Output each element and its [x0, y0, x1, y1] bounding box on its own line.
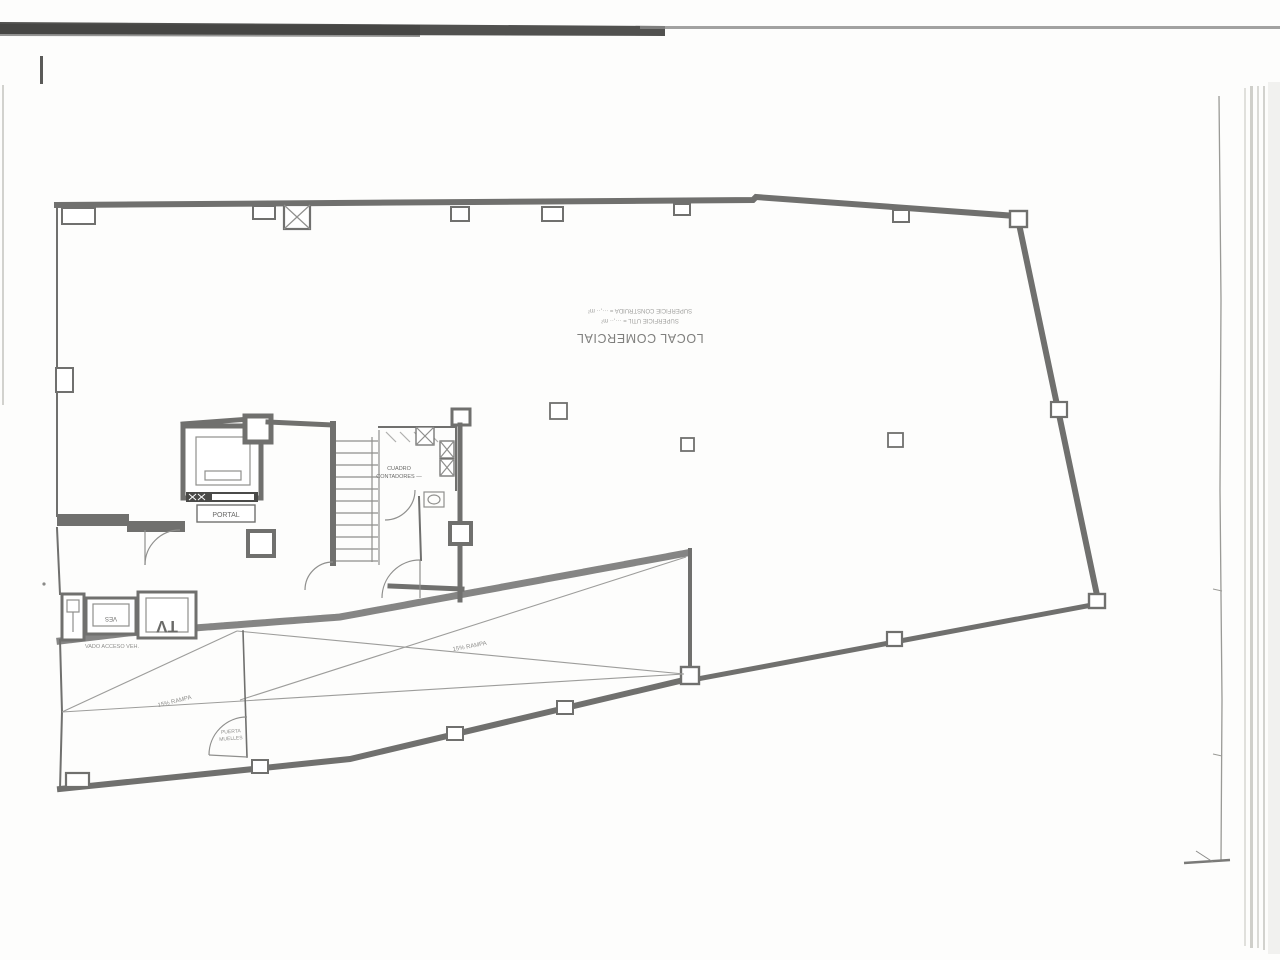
scan-right-stripe [1257, 86, 1259, 948]
pillar-free [888, 433, 903, 447]
pillar-core-right [450, 523, 471, 544]
meters-room-label-1: CUADRO [387, 466, 412, 472]
pillar-free [681, 438, 694, 451]
vado-caption: VADO ACCESO VEH. [85, 644, 139, 650]
meters-room-label-2: CONTADORES — [376, 474, 422, 480]
local-comercial-title: LOCAL COMERCIAL [576, 331, 703, 345]
scan-top-line [640, 26, 1280, 29]
pillar-left-wall [56, 368, 73, 392]
pillar-street-wall [252, 760, 268, 773]
pillar-street-wall [66, 773, 89, 787]
scan-right-stripe [1250, 86, 1253, 948]
scan-right-stripe [1244, 88, 1246, 946]
pillar-street-wall [447, 727, 463, 740]
scan-top-bar-smudge [0, 24, 420, 37]
pillar [451, 207, 469, 221]
superficie-util-line: SUPERFICIE UTIL = ···,·· m² [601, 317, 679, 323]
pillar [893, 210, 909, 222]
pillar [674, 204, 690, 215]
pillar [62, 208, 95, 224]
pillar-corner-tr [1010, 211, 1027, 227]
scan-right-margin [1268, 82, 1280, 954]
pillar [542, 207, 563, 221]
portal-label: PORTAL [212, 512, 239, 519]
pillar-free [550, 403, 567, 419]
wall-core-top2 [268, 422, 333, 425]
scan-tick-topleft [40, 56, 43, 84]
scan-right-stripe [1263, 86, 1265, 950]
pillar-street-wall [557, 701, 573, 714]
floor-plan-drawing: PORTAL CUADRO CONTADORES — [0, 0, 1280, 960]
core-bottom-wall [390, 586, 462, 589]
tv-label: TV [155, 617, 177, 636]
pillar-xbox [284, 205, 310, 229]
ves-label: VES [105, 615, 117, 621]
pillar-ramp-corner [681, 667, 699, 684]
sill-slot [212, 494, 254, 500]
pillar-bottom-wall [887, 632, 902, 646]
pillar [253, 206, 275, 219]
scanned-floor-plan-page: PORTAL CUADRO CONTADORES — [0, 0, 1280, 960]
superficie-construida-line: SUPERFICIE CONSTRUIDA = ···,·· m² [588, 307, 692, 313]
wall-lobby-band [57, 514, 129, 526]
pillar-right-wall [1051, 402, 1067, 417]
pillar-core-low [248, 531, 274, 556]
scan-speck [42, 582, 45, 585]
pillar-corner-br [1089, 594, 1105, 608]
scan-left-edge [2, 85, 4, 405]
